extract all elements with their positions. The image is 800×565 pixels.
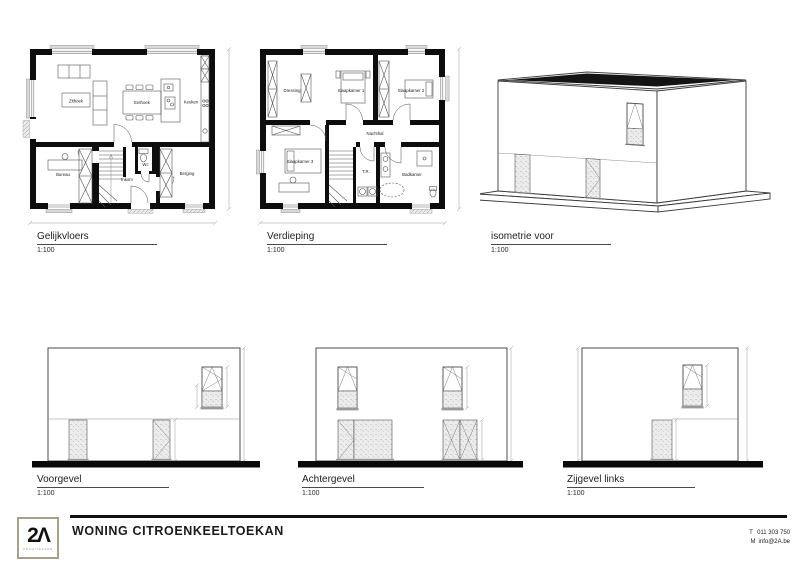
figure-verdieping: Dressing Slaapkamer 1 Slaapkamer 2 Slaap… (245, 35, 475, 235)
room-label-slaapkamer3: Slaapkamer 3 (287, 159, 314, 164)
caption-scale: 1:100 (37, 247, 157, 254)
room-label-bureau: Bureau (56, 172, 70, 177)
figure-gelijkvloers: Zithoek Eethoek Keuken Bureau Inkom Wc B… (15, 35, 245, 235)
caption-title: Zijgevel links (567, 474, 695, 488)
room-label-slaapkamer2: Slaapkamer 2 (398, 88, 425, 93)
room-label-zithoek: Zithoek (69, 99, 84, 104)
room-label-badkamer: Badkamer (402, 172, 422, 177)
gelijkvloers-plan-drawing: Zithoek Eethoek Keuken Bureau Inkom Wc B… (15, 35, 245, 235)
caption-title: Gelijkvloers (37, 231, 157, 245)
titleblock-rule (70, 515, 787, 518)
drawing-sheet: Zithoek Eethoek Keuken Bureau Inkom Wc B… (0, 0, 800, 565)
ground-line (298, 461, 523, 468)
room-label-eethoek: Eethoek (134, 100, 151, 105)
caption-voorgevel: Voorgevel 1:100 (37, 474, 169, 497)
caption-title: isometrie voor (491, 231, 611, 245)
caption-gelijkvloers: Gelijkvloers 1:100 (37, 231, 157, 254)
email-address: info@2A.be (759, 539, 790, 545)
architect-logo: 2Λ ARCHITECTEN (17, 517, 59, 559)
contact-email: Minfo@2A.be (640, 538, 790, 547)
upper-window (625, 103, 645, 146)
figure-isometrie (480, 55, 780, 225)
front-door-right (584, 159, 602, 200)
logo-subtitle: ARCHITECTEN (23, 547, 53, 551)
room-label-tr: T.R. (362, 169, 370, 174)
caption-scale: 1:100 (302, 490, 424, 497)
room-label-slaapkamer1: Slaapkamer 1 (338, 88, 365, 93)
achtergevel-drawing (290, 338, 535, 488)
contact-phone: T011 303 750 (640, 529, 790, 538)
room-label-wc: Wc (142, 162, 149, 167)
caption-achtergevel: Achtergevel 1:100 (302, 474, 424, 497)
verdieping-plan-drawing: Dressing Slaapkamer 1 Slaapkamer 2 Slaap… (245, 35, 475, 235)
isometrie-drawing (480, 55, 780, 225)
contact-info: T011 303 750 Minfo@2A.be (640, 529, 790, 546)
ground-line (563, 461, 763, 468)
room-label-nachthal: Nachthal (367, 131, 384, 136)
voorgevel-drawing (25, 338, 270, 488)
project-title: WONING CITROENKEELTOEKAN (72, 524, 284, 538)
logo-mark: 2Λ (27, 526, 49, 546)
caption-title: Voorgevel (37, 474, 169, 488)
figure-zijgevel-links (555, 338, 780, 488)
zijgevel-links-drawing (555, 338, 780, 488)
caption-title: Achtergevel (302, 474, 424, 488)
figure-achtergevel (290, 338, 535, 488)
upper-window-1 (337, 367, 359, 410)
house-walls (498, 72, 746, 203)
room-label-keuken: Keuken (184, 100, 199, 105)
caption-scale: 1:100 (267, 247, 387, 254)
caption-scale: 1:100 (567, 490, 695, 497)
room-label-dressing: Dressing (284, 88, 302, 93)
lower-window-1 (336, 420, 394, 461)
phone-number: 011 303 750 (757, 530, 790, 536)
front-door-left (513, 154, 532, 194)
caption-scale: 1:100 (37, 490, 169, 497)
figure-voorgevel (25, 338, 270, 488)
caption-scale: 1:100 (491, 247, 611, 254)
caption-zijgevel-links: Zijgevel links 1:100 (567, 474, 695, 497)
caption-title: Verdieping (267, 231, 387, 245)
phone-label: T (749, 529, 757, 538)
room-label-inkom: Inkom (121, 177, 133, 182)
caption-isometrie: isometrie voor 1:100 (491, 231, 611, 254)
caption-verdieping: Verdieping 1:100 (267, 231, 387, 254)
email-label: M (751, 538, 759, 547)
ground-line (32, 461, 260, 468)
room-label-berging: Berging (180, 171, 195, 176)
door-1 (68, 420, 89, 461)
